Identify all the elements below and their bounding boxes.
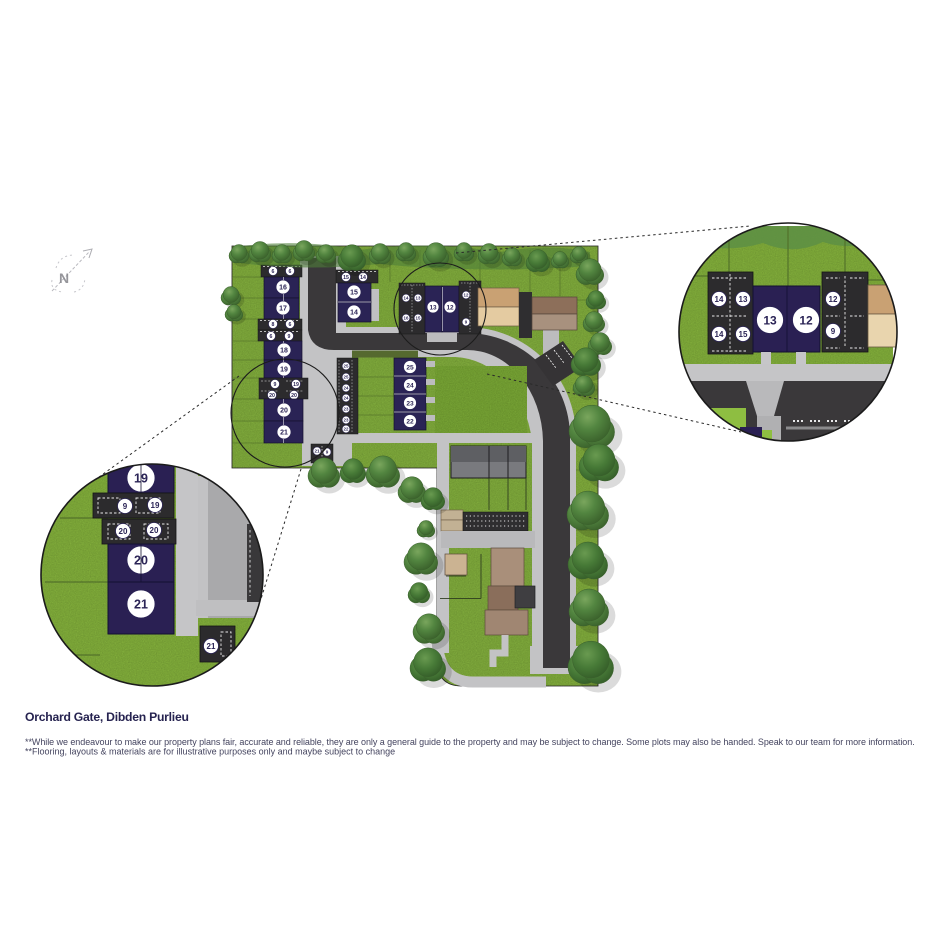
svg-text:**Flooring, layouts & material: **Flooring, layouts & materials are for … — [25, 747, 395, 757]
svg-text:14: 14 — [350, 310, 358, 317]
svg-text:20: 20 — [291, 393, 297, 399]
svg-text:14: 14 — [404, 296, 409, 301]
svg-text:6: 6 — [270, 334, 273, 340]
svg-text:25: 25 — [344, 364, 349, 369]
svg-text:20: 20 — [269, 393, 275, 399]
svg-text:13: 13 — [739, 295, 748, 304]
svg-text:15: 15 — [416, 316, 421, 321]
svg-text:N: N — [59, 270, 69, 286]
svg-text:24: 24 — [344, 396, 349, 401]
svg-text:15: 15 — [739, 330, 748, 339]
svg-text:18: 18 — [280, 348, 288, 355]
svg-text:**While we endeavour to make o: **While we endeavour to make our propert… — [25, 737, 915, 747]
svg-text:23: 23 — [406, 400, 414, 407]
svg-text:21: 21 — [207, 642, 216, 651]
svg-text:14: 14 — [715, 295, 724, 304]
svg-text:6: 6 — [289, 322, 292, 328]
svg-text:16: 16 — [279, 285, 287, 292]
svg-text:24: 24 — [344, 386, 349, 391]
svg-text:15: 15 — [343, 275, 349, 281]
svg-text:22: 22 — [406, 418, 414, 425]
svg-text:23: 23 — [344, 418, 349, 423]
svg-text:9: 9 — [123, 502, 128, 511]
svg-text:20: 20 — [280, 408, 288, 415]
svg-text:21: 21 — [280, 430, 288, 437]
svg-text:25: 25 — [406, 364, 414, 371]
svg-text:21: 21 — [134, 598, 148, 612]
svg-text:12: 12 — [799, 313, 813, 327]
svg-text:19: 19 — [280, 367, 288, 374]
svg-text:19: 19 — [293, 382, 299, 388]
svg-text:12: 12 — [464, 293, 469, 298]
svg-text:25: 25 — [344, 375, 349, 380]
svg-text:6: 6 — [289, 269, 292, 275]
svg-text:20: 20 — [150, 526, 159, 535]
svg-text:12: 12 — [446, 304, 454, 311]
svg-text:20: 20 — [119, 527, 128, 536]
svg-text:15: 15 — [350, 290, 358, 297]
svg-text:23: 23 — [344, 407, 349, 412]
svg-text:Orchard Gate, Dibden Purlieu: Orchard Gate, Dibden Purlieu — [25, 710, 189, 724]
svg-text:24: 24 — [406, 382, 414, 389]
svg-text:9: 9 — [274, 382, 277, 388]
svg-text:16: 16 — [404, 316, 409, 321]
svg-text:14: 14 — [360, 275, 366, 281]
svg-text:22: 22 — [344, 427, 349, 432]
svg-text:9: 9 — [288, 334, 291, 340]
svg-text:9: 9 — [831, 327, 836, 336]
svg-text:9: 9 — [326, 450, 329, 455]
svg-text:17: 17 — [279, 306, 287, 313]
svg-text:8: 8 — [272, 322, 275, 328]
svg-text:13: 13 — [763, 313, 777, 327]
svg-text:14: 14 — [715, 330, 724, 339]
svg-text:19: 19 — [151, 501, 160, 510]
svg-text:13: 13 — [416, 296, 421, 301]
svg-text:13: 13 — [429, 304, 437, 311]
svg-text:12: 12 — [829, 295, 838, 304]
svg-text:21: 21 — [314, 449, 320, 454]
svg-text:6: 6 — [272, 269, 275, 275]
